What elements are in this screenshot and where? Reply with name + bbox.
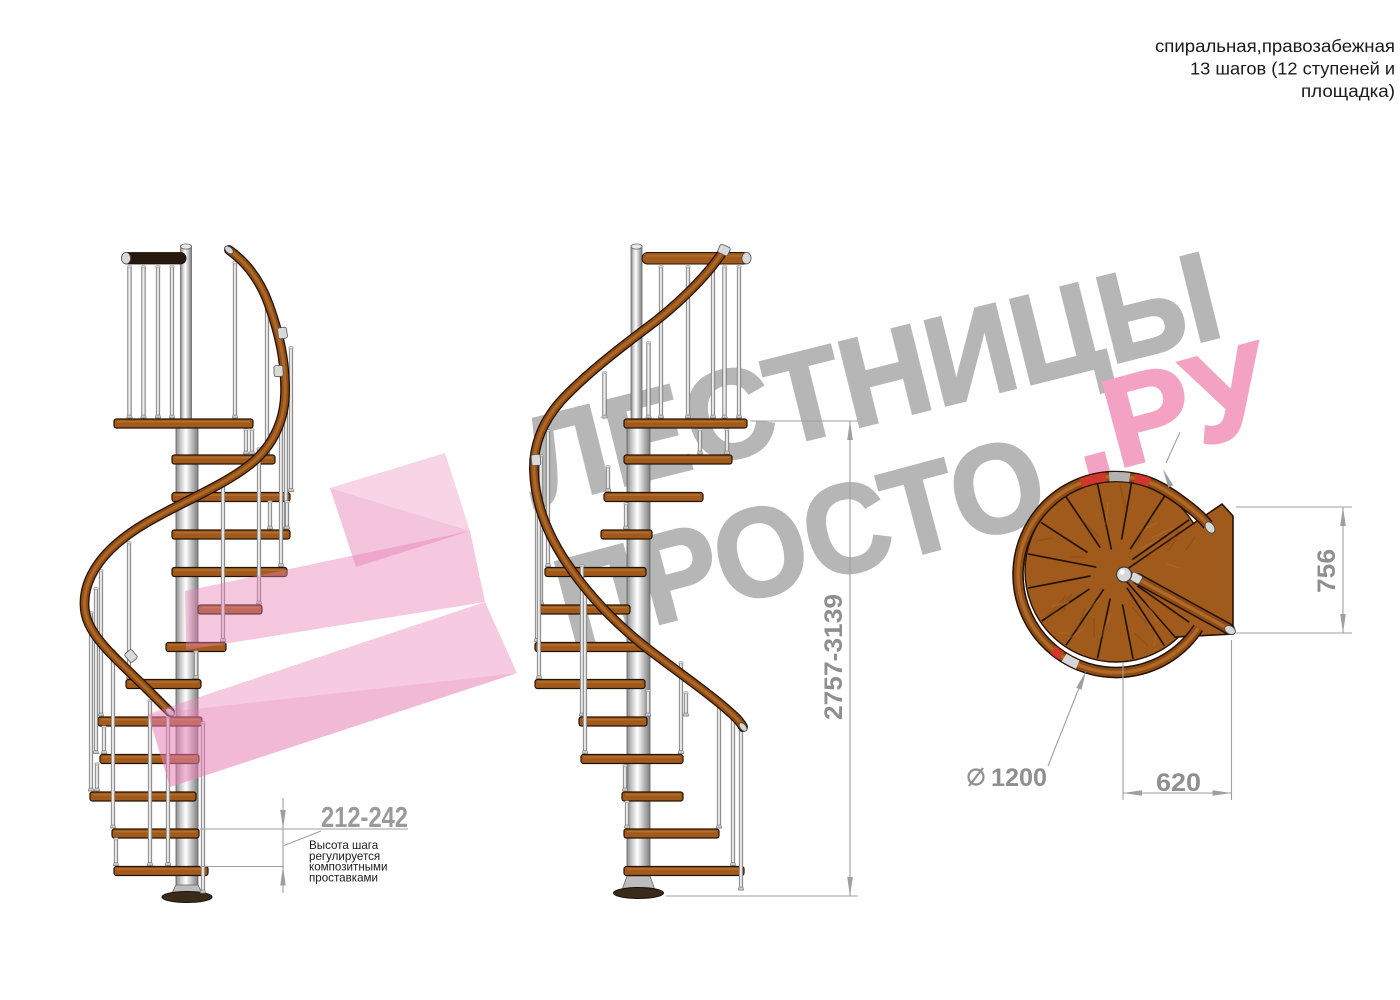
svg-text:620: 620 <box>1156 769 1201 797</box>
svg-text:13 шагов (12 ступеней и: 13 шагов (12 ступеней и <box>1190 59 1395 79</box>
svg-text:площадка): площадка) <box>1301 81 1395 101</box>
svg-text:212-242: 212-242 <box>321 802 408 834</box>
svg-text:спиральная,правозабежная: спиральная,правозабежная <box>1155 36 1395 56</box>
svg-text:проставками: проставками <box>309 871 378 884</box>
svg-text:1200: 1200 <box>991 764 1047 792</box>
svg-text:2757-3139: 2757-3139 <box>820 594 848 720</box>
svg-text:756: 756 <box>1313 549 1341 593</box>
